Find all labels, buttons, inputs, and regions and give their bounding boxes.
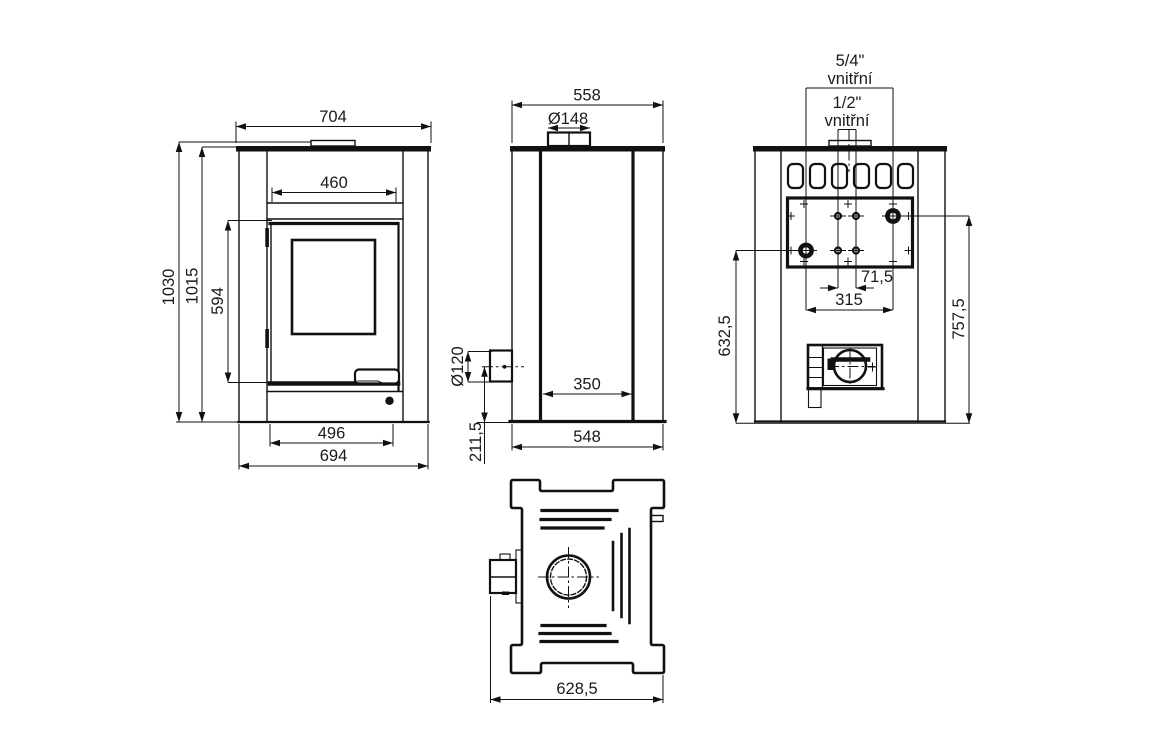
top-view: 628,5 [490, 480, 664, 703]
dim-front-door-height: 594 [209, 287, 227, 315]
door-glass [292, 240, 375, 334]
dim-front-total-height: 1030 [160, 269, 178, 306]
side-view: 558 Ø148 Ø120 211,5 350 548 [449, 87, 665, 465]
label-large-fitting-kind: vnitřní [828, 70, 873, 88]
dim-front-inner-base-width: 496 [318, 425, 346, 443]
rear-top-plate [753, 146, 947, 152]
dim-front-base-width: 694 [320, 447, 348, 465]
dim-rear-upper-port-height: 757,5 [950, 298, 968, 339]
rear-dimensions: 5/4" vnitřní 1/2" vnitřní 71,5 315 632,5 [716, 52, 969, 423]
boiler-pipe-stub [490, 351, 512, 382]
label-large-fitting-size: 5/4" [836, 52, 865, 70]
dim-front-body-height: 1015 [184, 268, 202, 305]
top-body [490, 480, 664, 673]
dim-side-top-depth: 558 [573, 87, 601, 105]
top-pipe-stub [490, 550, 522, 603]
top-slots [540, 511, 617, 642]
dim-side-flue-diameter: Ø148 [548, 110, 588, 128]
dim-side-inner-depth: 350 [573, 376, 601, 394]
stove-dimension-drawing: 704 460 1030 1015 594 496 [0, 0, 1152, 752]
dim-side-pipe-diameter: Ø120 [449, 346, 467, 386]
top-dimensions: 628,5 [491, 596, 664, 703]
label-small-fitting-size: 1/2" [833, 94, 862, 112]
technical-drawing-page: 704 460 1030 1015 594 496 [0, 0, 1152, 752]
door-hinge-top [265, 228, 269, 247]
rear-body [736, 141, 970, 424]
front-top-plate [236, 146, 431, 152]
label-small-fitting-kind: vnitřní [825, 112, 870, 130]
top-side-louvers [613, 529, 630, 623]
dim-side-base-depth: 548 [573, 428, 601, 446]
dim-rear-large-ports-spacing: 315 [835, 291, 863, 309]
rear-fitting-boss [829, 141, 871, 147]
dim-side-pipe-axis-height: 211,5 [467, 422, 485, 462]
top-right-clip [651, 516, 663, 522]
side-dimensions: 558 Ø148 Ø120 211,5 350 548 [449, 87, 663, 465]
dim-front-glass-width: 460 [320, 174, 348, 192]
ashpan-knob [385, 397, 393, 405]
box-foot [809, 390, 822, 408]
front-view: 704 460 1030 1015 594 496 [160, 108, 431, 470]
dim-rear-lower-port-height: 632,5 [716, 315, 734, 356]
front-flue-collar [311, 141, 355, 147]
dim-front-top-width: 704 [319, 108, 347, 126]
flue-cleanout-box [808, 345, 883, 408]
rear-view: 5/4" vnitřní 1/2" vnitřní 71,5 315 632,5 [716, 52, 970, 423]
rear-vent-row [788, 164, 913, 188]
front-dimensions: 704 460 1030 1015 594 496 [160, 108, 431, 470]
dim-rear-small-ports-spacing: 71,5 [861, 268, 893, 286]
dim-top-overall-depth: 628,5 [556, 680, 597, 698]
door-hinge-bottom [265, 329, 269, 348]
